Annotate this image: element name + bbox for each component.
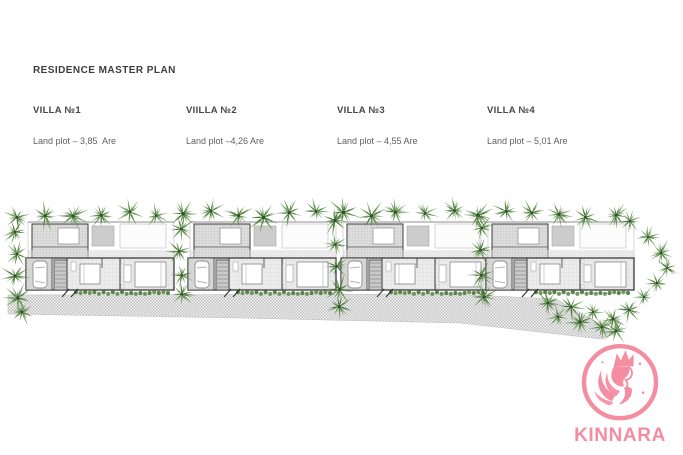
brand-name: KINNARA <box>565 425 675 447</box>
brochure-page: RESIDENCE MASTER PLAN VILLA №1 Land plot… <box>0 0 683 455</box>
brand-logo: KINNARA <box>565 342 675 447</box>
kinnara-figure-icon <box>580 342 660 424</box>
